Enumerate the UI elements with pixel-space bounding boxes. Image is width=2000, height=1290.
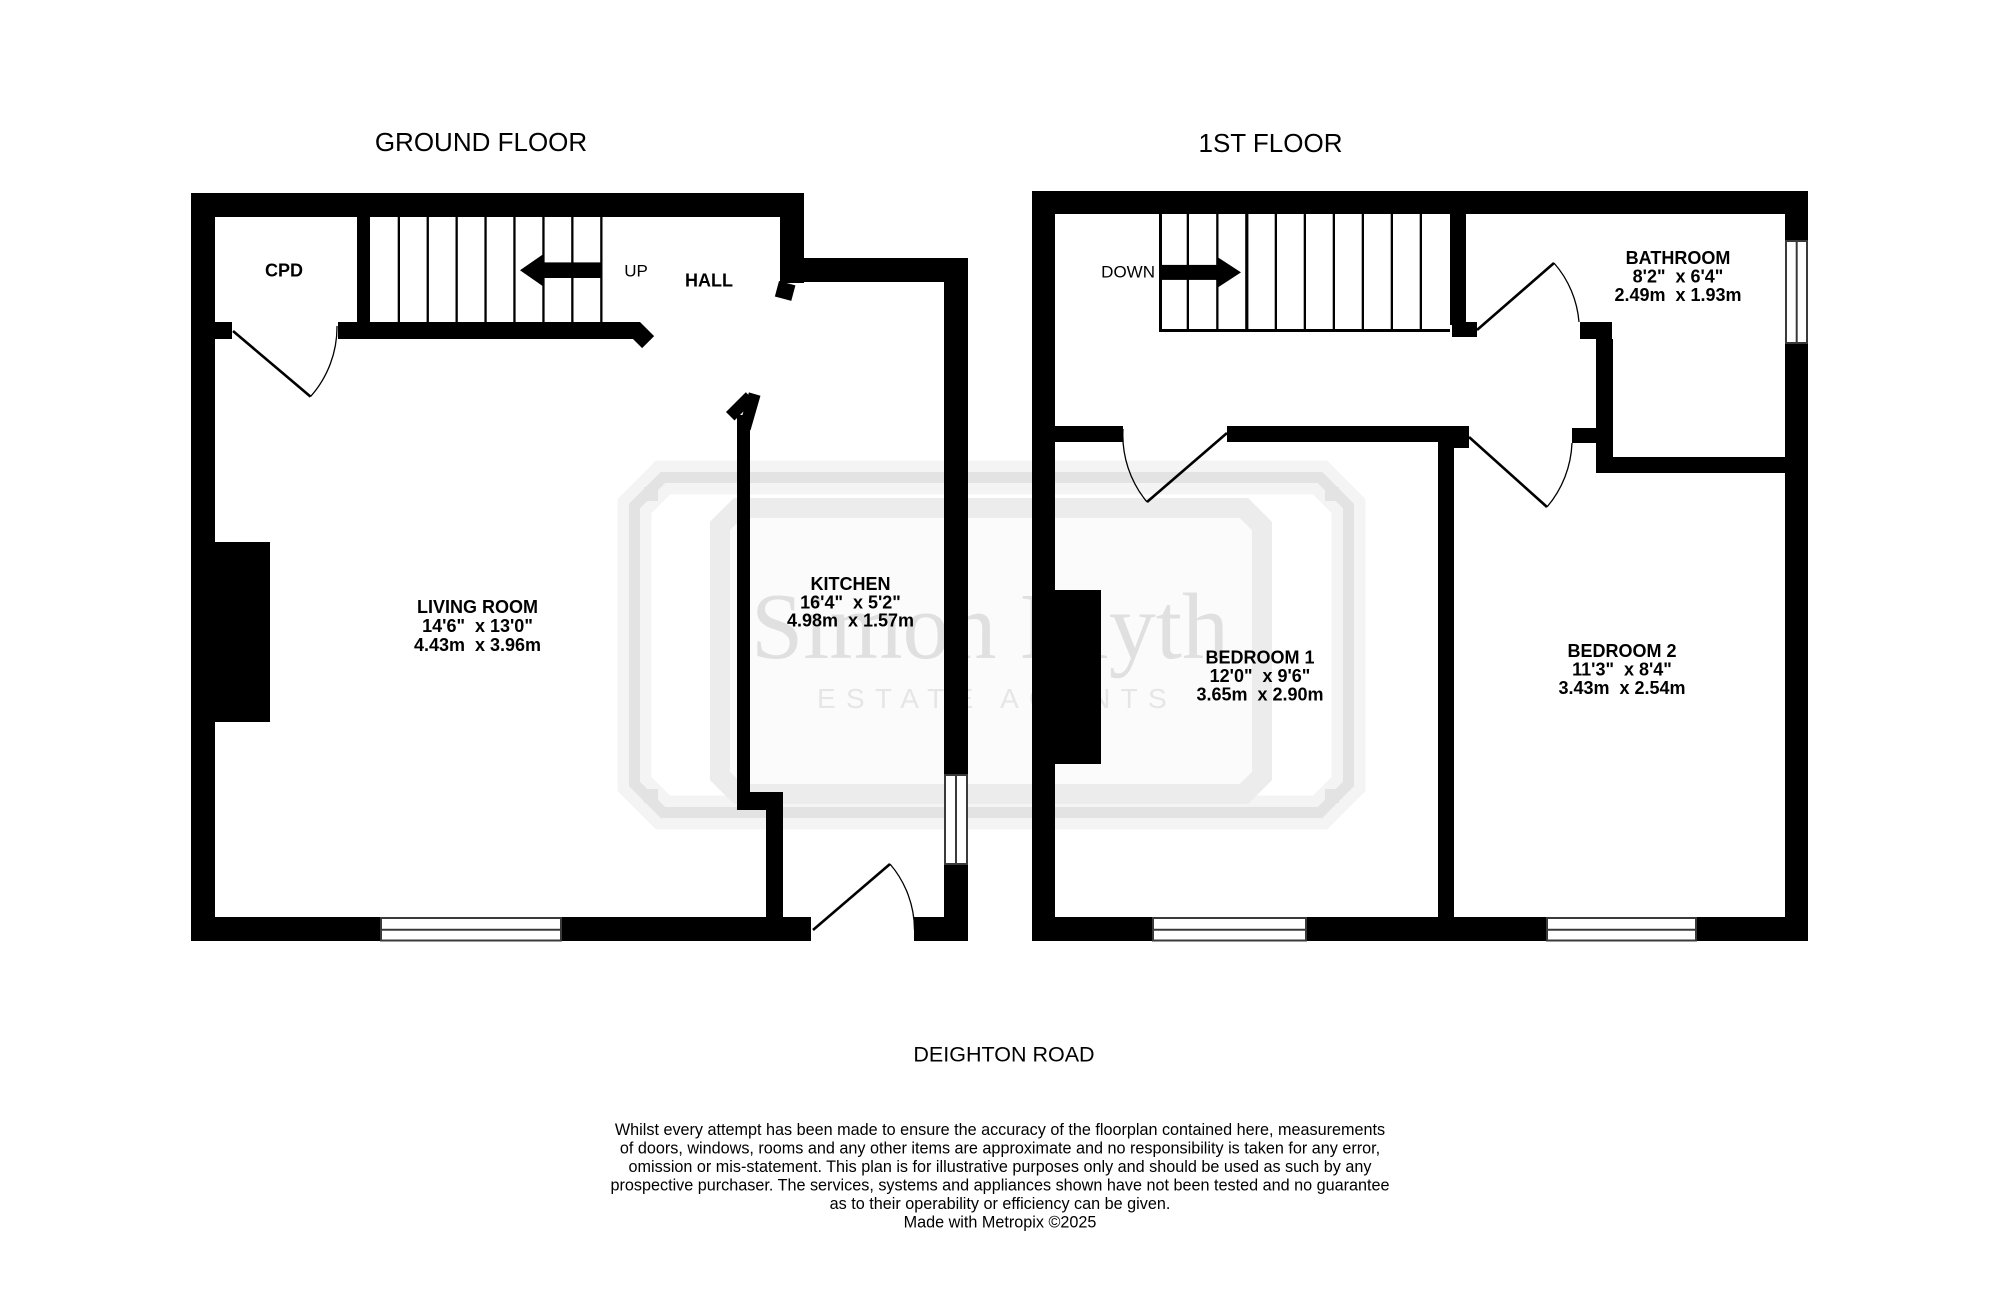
svg-text:16'4" x 5'2": 16'4" x 5'2"	[800, 593, 901, 613]
svg-text:11'3" x 8'4": 11'3" x 8'4"	[1572, 660, 1672, 680]
svg-text:prospective purchaser. The ser: prospective purchaser. The services, sys…	[611, 1177, 1390, 1195]
svg-text:Whilst every attempt has been: Whilst every attempt has been made to en…	[615, 1121, 1385, 1139]
svg-text:DOWN: DOWN	[1101, 263, 1155, 282]
svg-text:BEDROOM 2: BEDROOM 2	[1567, 641, 1676, 661]
svg-text:4.43m x 3.96m: 4.43m x 3.96m	[414, 635, 541, 655]
svg-text:4.98m x 1.57m: 4.98m x 1.57m	[787, 611, 914, 631]
svg-text:as to their operability or eff: as to their operability or efficiency ca…	[830, 1195, 1171, 1213]
svg-text:DEIGHTON ROAD: DEIGHTON ROAD	[913, 1043, 1094, 1067]
svg-text:LIVING ROOM: LIVING ROOM	[417, 597, 538, 617]
svg-text:1ST FLOOR: 1ST FLOOR	[1198, 128, 1342, 158]
svg-text:HALL: HALL	[685, 271, 733, 291]
svg-text:2.49m x 1.93m: 2.49m x 1.93m	[1614, 285, 1741, 305]
svg-text:Made with Metropix ©2025: Made with Metropix ©2025	[904, 1214, 1097, 1232]
svg-text:14'6" x 13'0": 14'6" x 13'0"	[422, 616, 533, 636]
svg-text:8'2" x 6'4": 8'2" x 6'4"	[1633, 266, 1724, 286]
svg-text:CPD: CPD	[265, 261, 303, 281]
svg-text:3.43m x 2.54m: 3.43m x 2.54m	[1558, 678, 1685, 698]
svg-text:UP: UP	[624, 262, 648, 281]
svg-text:KITCHEN: KITCHEN	[811, 574, 891, 594]
svg-text:of doors, windows, rooms and a: of doors, windows, rooms and any other i…	[620, 1140, 1380, 1158]
svg-text:BEDROOM 1: BEDROOM 1	[1205, 648, 1314, 668]
svg-text:GROUND FLOOR: GROUND FLOOR	[375, 127, 587, 157]
svg-text:BATHROOM: BATHROOM	[1626, 248, 1731, 268]
svg-text:3.65m x 2.90m: 3.65m x 2.90m	[1196, 685, 1323, 705]
svg-text:omission or mis-statement. Thi: omission or mis-statement. This plan is …	[629, 1158, 1373, 1176]
svg-text:ESTATE AGENTS: ESTATE AGENTS	[817, 683, 1177, 714]
svg-text:12'0" x 9'6": 12'0" x 9'6"	[1210, 666, 1311, 686]
